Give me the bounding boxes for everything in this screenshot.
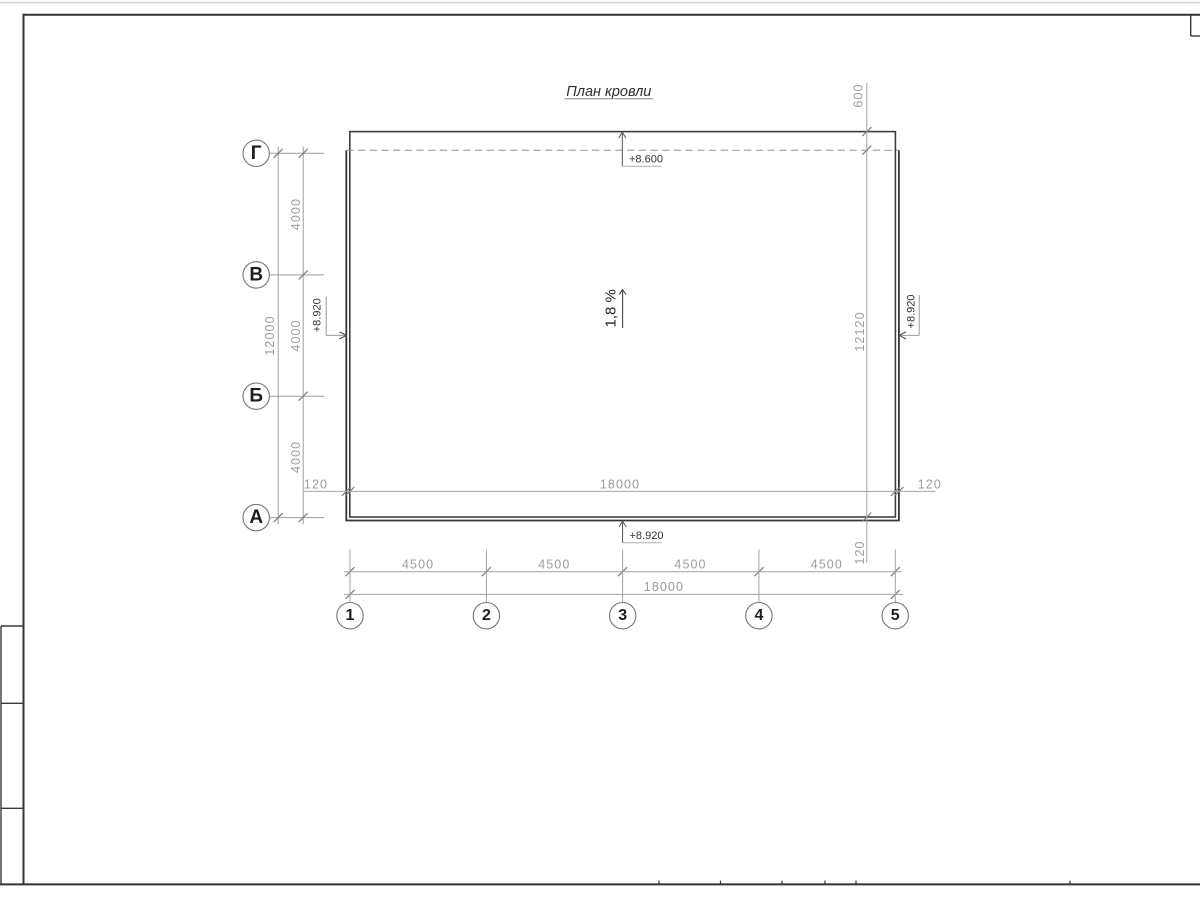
svg-text:120: 120	[853, 540, 867, 564]
svg-text:+8.600: +8.600	[629, 154, 663, 166]
svg-text:2: 2	[482, 607, 491, 624]
svg-text:4500: 4500	[811, 557, 843, 571]
svg-text:1: 1	[346, 607, 355, 624]
svg-text:3: 3	[618, 607, 627, 624]
svg-text:600: 600	[852, 83, 866, 107]
svg-text:4500: 4500	[402, 557, 434, 571]
svg-text:12120: 12120	[853, 311, 867, 351]
svg-text:+8.920: +8.920	[630, 530, 664, 542]
svg-text:План кровли: План кровли	[566, 84, 651, 100]
svg-text:1,8 %: 1,8 %	[603, 289, 620, 327]
svg-text:В: В	[249, 264, 263, 285]
svg-text:4: 4	[754, 607, 763, 624]
svg-text:18000: 18000	[600, 477, 640, 491]
svg-text:Г: Г	[251, 143, 262, 164]
svg-text:+8.920: +8.920	[311, 298, 323, 332]
svg-text:+8.920: +8.920	[905, 295, 917, 329]
svg-text:4500: 4500	[674, 557, 706, 571]
svg-text:А: А	[249, 507, 263, 528]
svg-text:12000: 12000	[263, 315, 277, 355]
svg-text:4000: 4000	[289, 198, 303, 230]
svg-text:18000: 18000	[644, 580, 684, 594]
svg-text:4000: 4000	[289, 441, 303, 473]
svg-text:4000: 4000	[289, 319, 303, 351]
svg-text:120: 120	[918, 477, 942, 491]
svg-text:5: 5	[891, 607, 900, 624]
svg-text:4500: 4500	[538, 557, 570, 571]
svg-text:Б: Б	[249, 386, 263, 407]
svg-text:120: 120	[304, 477, 328, 491]
